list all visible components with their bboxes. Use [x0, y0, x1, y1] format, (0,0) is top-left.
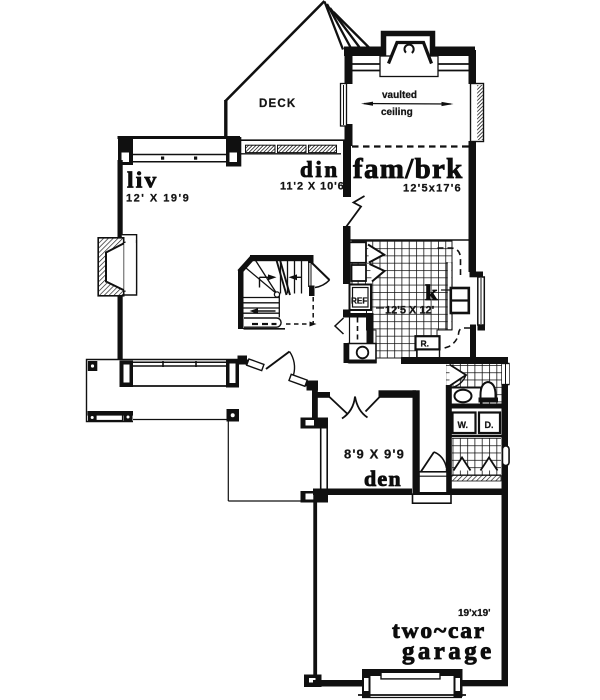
- svg-text:fam/brk: fam/brk: [353, 153, 464, 185]
- svg-text:REF: REF: [351, 297, 367, 306]
- svg-text:den: den: [364, 466, 402, 491]
- svg-text:W.: W.: [458, 420, 469, 430]
- svg-text:din: din: [300, 157, 340, 182]
- svg-text:8'9 X 9'9: 8'9 X 9'9: [344, 447, 405, 462]
- svg-text:garage: garage: [402, 638, 495, 665]
- svg-text:liv: liv: [127, 168, 158, 194]
- svg-text:vaulted: vaulted: [382, 90, 417, 101]
- svg-text:D.: D.: [485, 420, 494, 430]
- svg-text:DECK: DECK: [259, 98, 296, 110]
- svg-text:12'5x17'6: 12'5x17'6: [403, 183, 462, 195]
- svg-text:11'2 X 10'6: 11'2 X 10'6: [280, 181, 345, 193]
- svg-text:R.: R.: [421, 339, 430, 349]
- svg-text:ceiling: ceiling: [381, 107, 413, 118]
- svg-text:12' X 19'9: 12' X 19'9: [126, 193, 190, 205]
- svg-text:12'5 X 12': 12'5 X 12': [385, 305, 435, 317]
- svg-text:k: k: [425, 280, 438, 305]
